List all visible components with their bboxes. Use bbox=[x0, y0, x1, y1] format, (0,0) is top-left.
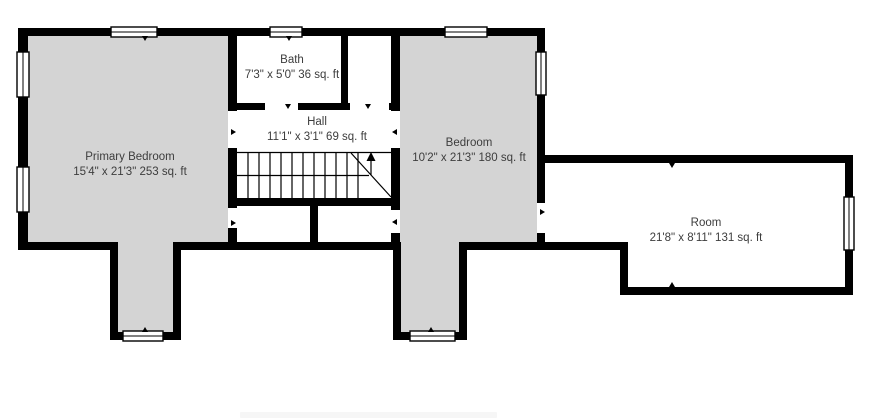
primary-bedroom-fill bbox=[28, 36, 228, 242]
room-name: Room bbox=[650, 216, 763, 231]
door-marker-icon bbox=[392, 219, 397, 225]
primary-bedroom-label: Primary Bedroom 15'4" x 21'3" 253 sq. ft bbox=[73, 150, 187, 180]
room-dimensions: 7'3" x 5'0" 36 sq. ft bbox=[245, 68, 339, 83]
window bbox=[17, 167, 29, 212]
watermark bbox=[240, 412, 497, 418]
window bbox=[410, 331, 455, 341]
window bbox=[536, 52, 546, 95]
door-marker-icon bbox=[540, 209, 545, 215]
staircase bbox=[237, 152, 391, 198]
window bbox=[111, 27, 157, 37]
window-tick-icon bbox=[669, 282, 675, 287]
window bbox=[123, 331, 163, 341]
room-dimensions: 10'2" x 21'3" 180 sq. ft bbox=[412, 151, 526, 166]
door-marker-icon bbox=[365, 104, 371, 109]
window bbox=[17, 52, 29, 97]
door-marker-icon bbox=[231, 220, 236, 226]
room-label: Room 21'8" x 8'11" 131 sq. ft bbox=[650, 216, 763, 246]
primary-bedroom-bay-fill bbox=[118, 240, 173, 332]
room-name: Bath bbox=[245, 53, 339, 68]
window-tick-icon bbox=[669, 163, 675, 168]
floorplan-page: { "plan": { "colors": { "background": "#… bbox=[0, 0, 870, 420]
bedroom-label: Bedroom 10'2" x 21'3" 180 sq. ft bbox=[412, 136, 526, 166]
floorplan-drawing bbox=[0, 0, 870, 420]
room-dimensions: 11'1" x 3'1" 69 sq. ft bbox=[267, 130, 367, 145]
door-marker-icon bbox=[392, 129, 397, 135]
hall-label: Hall 11'1" x 3'1" 69 sq. ft bbox=[267, 115, 367, 145]
room-name: Bedroom bbox=[412, 136, 526, 151]
room-name: Hall bbox=[267, 115, 367, 130]
door-marker-icon bbox=[285, 104, 291, 109]
window bbox=[844, 197, 854, 250]
window-tick-icon bbox=[286, 36, 292, 41]
window bbox=[445, 27, 487, 37]
bath-label: Bath 7'3" x 5'0" 36 sq. ft bbox=[245, 53, 339, 83]
window bbox=[270, 27, 302, 37]
room-dimensions: 15'4" x 21'3" 253 sq. ft bbox=[73, 165, 187, 180]
bedroom-bay-fill bbox=[401, 240, 459, 332]
door-marker-icon bbox=[231, 129, 236, 135]
room-name: Primary Bedroom bbox=[73, 150, 187, 165]
room-dimensions: 21'8" x 8'11" 131 sq. ft bbox=[650, 231, 763, 246]
